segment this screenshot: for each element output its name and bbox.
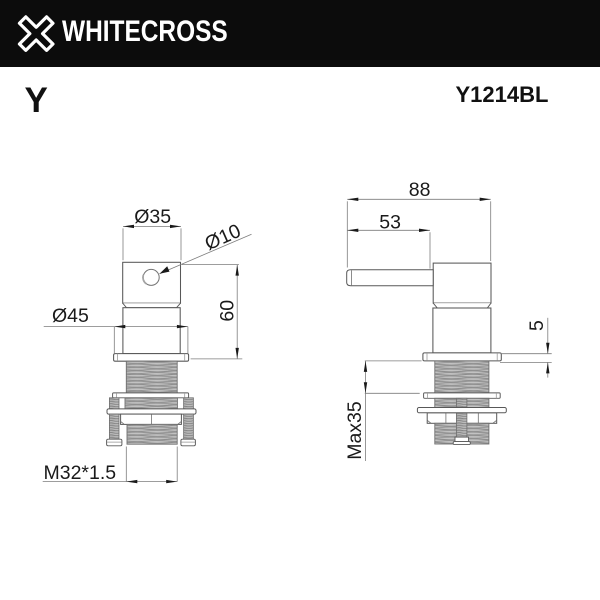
svg-text:Ø45: Ø45 [52,305,89,327]
svg-text:60: 60 [216,300,238,322]
svg-text:M32*1.5: M32*1.5 [44,462,117,484]
svg-text:Max35: Max35 [344,401,366,460]
svg-text:Ø10: Ø10 [202,220,245,255]
svg-text:88: 88 [409,179,431,201]
svg-text:5: 5 [526,320,548,331]
svg-text:Ø35: Ø35 [134,206,171,228]
